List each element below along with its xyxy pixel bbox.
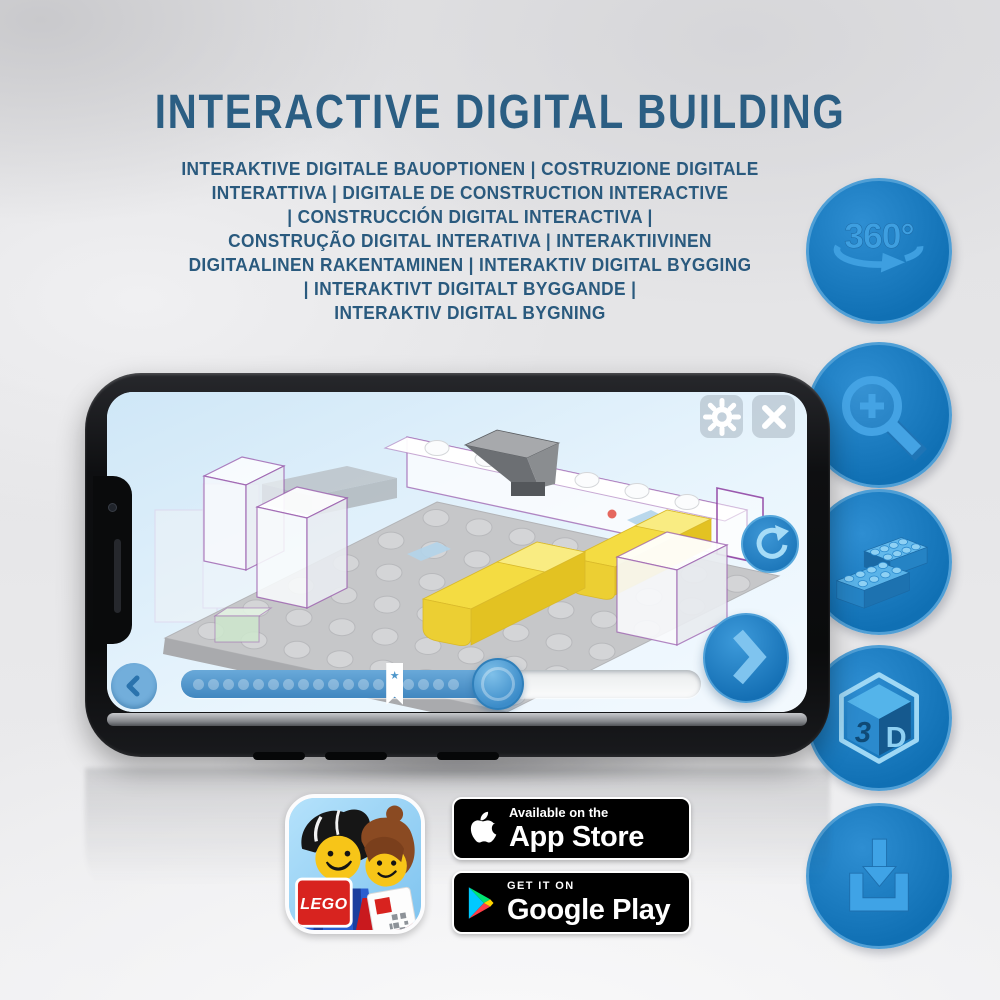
badge-store-name: Google Play — [507, 896, 670, 925]
subtitle-line: | INTERAKTIVT DIGITALT BYGGANDE | — [86, 277, 854, 301]
subtitle-line: INTERAKTIV DIGITAL BYGNING — [86, 301, 854, 325]
power-button — [437, 752, 499, 760]
google-play-logo-icon — [466, 885, 496, 921]
subtitle-line: INTERATTIVA | DIGITALE DE CONSTRUCTION I… — [86, 181, 854, 205]
subtitle-line: DIGITAALINEN RAKENTAMINEN | INTERAKTIV D… — [86, 253, 854, 277]
lego-app-artwork: LEGO — [289, 798, 421, 930]
step-progress-bar[interactable] — [181, 670, 701, 698]
app-store-badge[interactable]: Available on the App Store — [452, 797, 691, 860]
poster: INTERACTIVE DIGITAL BUILDING INTERAKTIVE… — [0, 0, 1000, 1000]
volume-button — [325, 752, 387, 760]
feature-360-rotation-icon: 360° — [806, 178, 952, 324]
rotate-icon — [750, 524, 790, 564]
lego-3d-scene — [107, 392, 807, 712]
progress-dot — [193, 679, 204, 690]
progress-dot — [328, 679, 339, 690]
progress-dot — [268, 679, 279, 690]
rotate-button[interactable] — [741, 515, 799, 573]
progress-dot — [373, 679, 384, 690]
progress-dot — [433, 679, 444, 690]
chevron-right-icon — [706, 618, 786, 698]
settings-button[interactable] — [700, 395, 743, 438]
close-button[interactable] — [752, 395, 795, 438]
svg-text:D: D — [886, 722, 907, 754]
progress-dot — [283, 679, 294, 690]
badge-store-name: App Store — [509, 823, 644, 852]
download-icon — [827, 824, 931, 928]
subtitle-line: INTERAKTIVE DIGITALE BAUOPTIONEN | COSTR… — [86, 157, 854, 181]
apple-logo-icon — [466, 810, 498, 848]
progress-dot — [223, 679, 234, 690]
lego-bricks-icon — [825, 508, 933, 616]
subtitle-line: | CONSTRUCCIÓN DIGITAL INTERACTIVA | — [86, 205, 854, 229]
progress-dot — [358, 679, 369, 690]
progress-fill — [181, 670, 498, 698]
3d-cube-icon: 3 D — [826, 665, 932, 771]
progress-dots — [193, 679, 459, 690]
progress-dot — [298, 679, 309, 690]
progress-dot — [403, 679, 414, 690]
progress-dot — [418, 679, 429, 690]
volume-button — [253, 752, 305, 760]
progress-dot — [313, 679, 324, 690]
badge-tagline: GET IT ON — [507, 881, 670, 892]
progress-dot — [208, 679, 219, 690]
page-title: INTERACTIVE DIGITAL BUILDING — [0, 85, 1000, 140]
subtitle: INTERAKTIVE DIGITALE BAUOPTIONEN | COSTR… — [70, 157, 870, 325]
progress-dot — [448, 679, 459, 690]
magnifier-plus-icon — [829, 365, 929, 465]
svg-text:360°: 360° — [844, 216, 914, 256]
speaker-slit — [114, 539, 121, 613]
app-screen — [107, 392, 807, 712]
progress-dot — [238, 679, 249, 690]
camera-notch — [93, 476, 132, 644]
badge-tagline: Available on the — [509, 806, 644, 819]
progress-dot — [343, 679, 354, 690]
chevron-left-icon — [121, 673, 147, 699]
google-play-badge[interactable]: GET IT ON Google Play — [452, 871, 691, 934]
previous-step-button[interactable] — [111, 663, 157, 709]
subtitle-line: CONSTRUÇÃO DIGITAL INTERATIVA | INTERAKT… — [86, 229, 854, 253]
front-camera-icon — [108, 503, 117, 512]
phone-mockup — [85, 373, 830, 757]
progress-handle[interactable] — [472, 658, 524, 710]
close-icon — [754, 397, 794, 437]
phone-bottom-glass — [107, 713, 807, 726]
next-step-button[interactable] — [703, 613, 789, 703]
progress-dot — [253, 679, 264, 690]
lego-app-icon[interactable]: LEGO — [285, 794, 425, 934]
svg-text:LEGO: LEGO — [300, 895, 347, 913]
svg-text:3: 3 — [855, 717, 871, 749]
gear-icon — [702, 397, 742, 437]
360-degrees-icon: 360° — [823, 208, 935, 294]
